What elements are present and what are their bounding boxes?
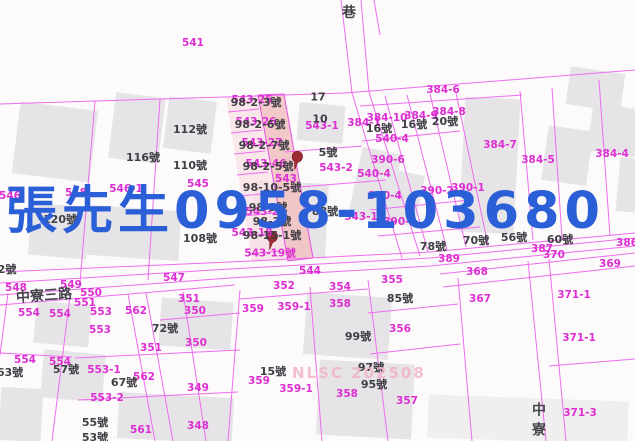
watermark: NLSC 202508	[292, 364, 426, 382]
contact-overlay-text: 張先生0958-103680	[6, 184, 605, 240]
cadastral-map: 541546548546-1545543543-1543-2543-1540-4…	[0, 0, 635, 441]
